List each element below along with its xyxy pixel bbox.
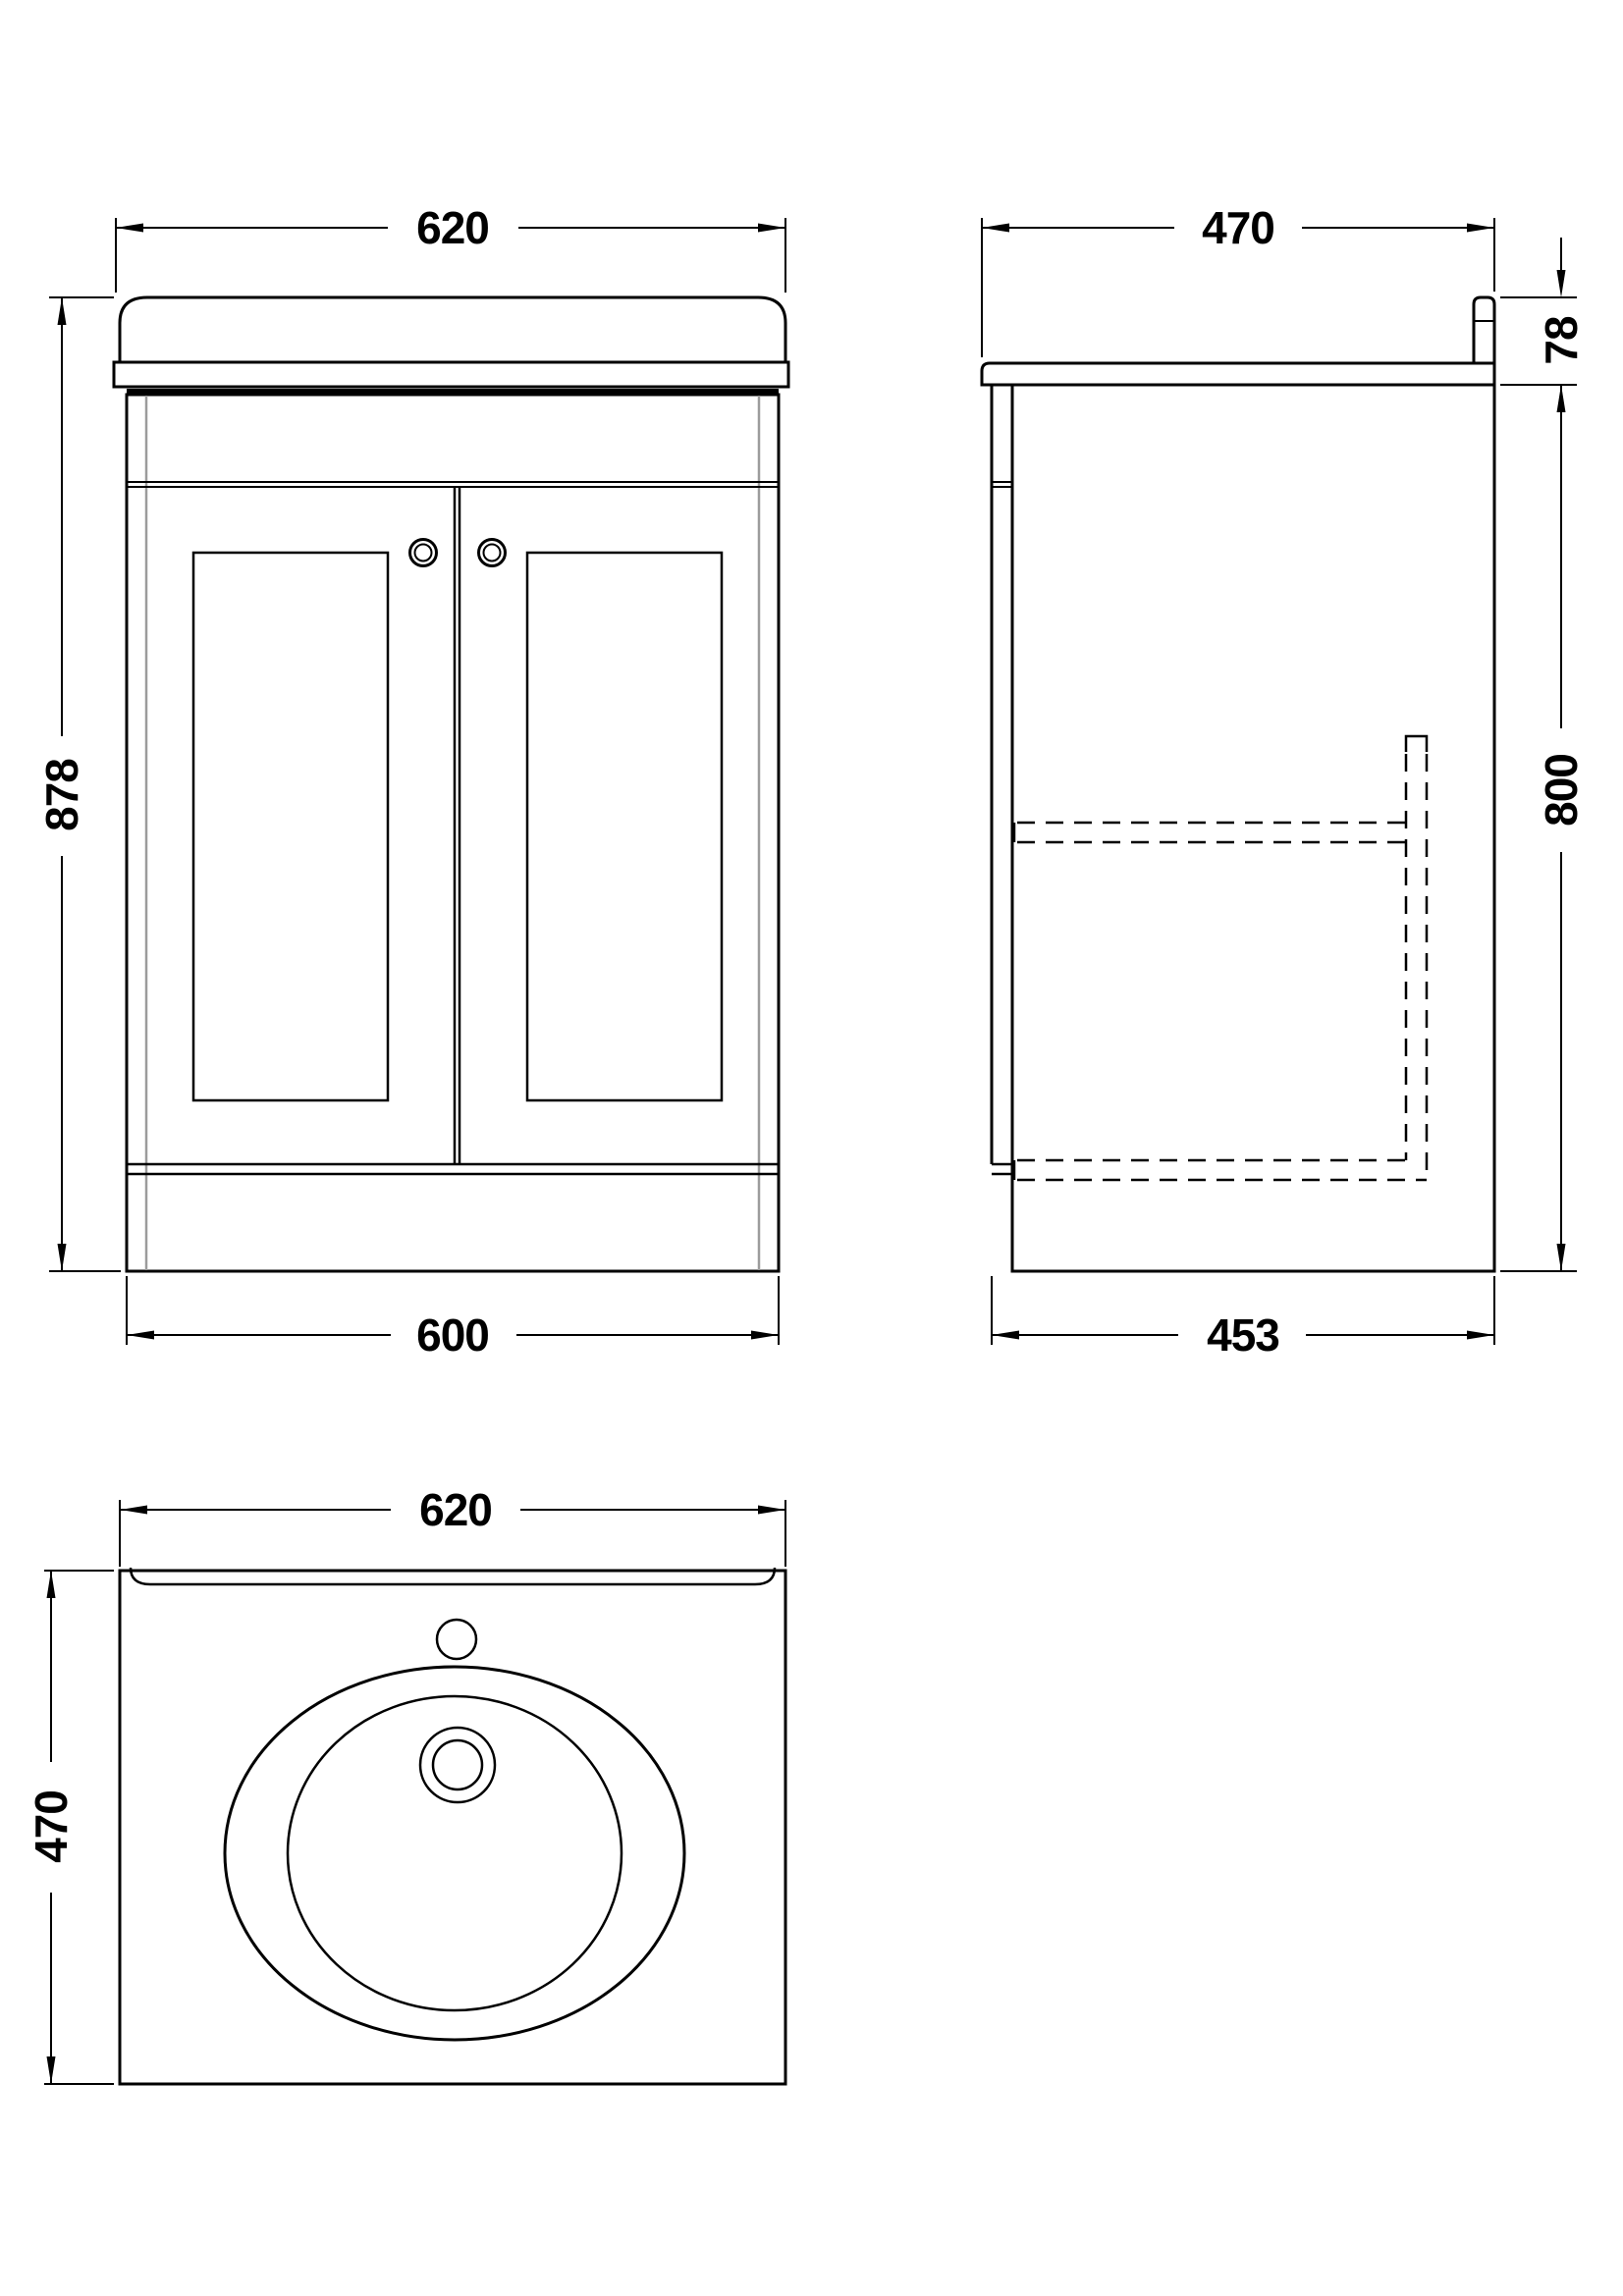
tap-hole bbox=[437, 1620, 476, 1659]
plan-view bbox=[120, 1568, 785, 2084]
side-hidden-shelf bbox=[1014, 823, 1406, 842]
front-basin-top bbox=[120, 297, 785, 362]
dim-plan-width: 620 bbox=[120, 1484, 785, 1567]
dim-label-plan-width: 620 bbox=[419, 1484, 492, 1535]
side-hidden-bottom bbox=[1014, 1160, 1427, 1180]
side-door-bottom-step bbox=[992, 1164, 1012, 1174]
dim-plan-depth: 470 bbox=[26, 1571, 114, 2084]
dim-front-height: 878 bbox=[36, 297, 121, 1271]
front-cabinet-body bbox=[127, 395, 779, 1271]
dimensions: 620 878 600 470 bbox=[26, 202, 1587, 2084]
waste-hole-outer bbox=[420, 1728, 495, 1802]
basin-bowl-outer bbox=[225, 1667, 684, 2040]
right-door-knob-inner bbox=[484, 545, 501, 561]
dim-label-side-top-depth: 470 bbox=[1202, 202, 1274, 253]
side-door-top-joint bbox=[992, 482, 1012, 487]
dim-label-front-height: 878 bbox=[36, 759, 87, 831]
side-hidden-back-panel bbox=[1406, 736, 1427, 1180]
plan-countertop-outline bbox=[120, 1571, 785, 2084]
side-cabinet-body bbox=[1012, 385, 1494, 1271]
dim-label-plan-depth: 470 bbox=[26, 1790, 77, 1863]
front-door-divider bbox=[455, 487, 460, 1164]
front-doors-top-line bbox=[127, 482, 779, 487]
side-basin-upstand bbox=[1474, 297, 1494, 363]
vanity-unit-dimension-drawing: 620 878 600 470 bbox=[0, 0, 1623, 2296]
front-basin-lip bbox=[114, 362, 788, 387]
dim-label-side-worktop-height: 78 bbox=[1536, 316, 1587, 365]
dim-front-bottom-width: 600 bbox=[127, 1276, 779, 1361]
dim-label-front-bottom-width: 600 bbox=[416, 1309, 489, 1361]
dim-side-cabinet-height: 800 bbox=[1500, 385, 1587, 1271]
waste-hole-inner bbox=[433, 1740, 482, 1789]
dim-side-top-depth: 470 bbox=[982, 202, 1494, 357]
dim-side-worktop-height: 78 bbox=[1500, 238, 1587, 385]
front-door-bottom-lines bbox=[127, 1164, 779, 1174]
dim-label-front-top-width: 620 bbox=[416, 202, 489, 253]
front-right-door-panel bbox=[527, 553, 722, 1100]
dim-label-side-cabinet-height: 800 bbox=[1536, 754, 1587, 827]
left-door-knob-inner bbox=[415, 545, 432, 561]
side-view bbox=[982, 297, 1494, 1271]
basin-bowl-inner bbox=[288, 1696, 622, 2010]
side-basin-slab bbox=[982, 363, 1494, 385]
dim-front-top-width: 620 bbox=[116, 202, 785, 293]
front-view bbox=[114, 297, 788, 1271]
dim-label-side-bottom-depth: 453 bbox=[1207, 1309, 1279, 1361]
technical-drawing-canvas: 620 878 600 470 bbox=[0, 0, 1623, 2296]
front-left-door-panel bbox=[193, 553, 388, 1100]
dim-side-bottom-depth: 453 bbox=[992, 1276, 1494, 1361]
